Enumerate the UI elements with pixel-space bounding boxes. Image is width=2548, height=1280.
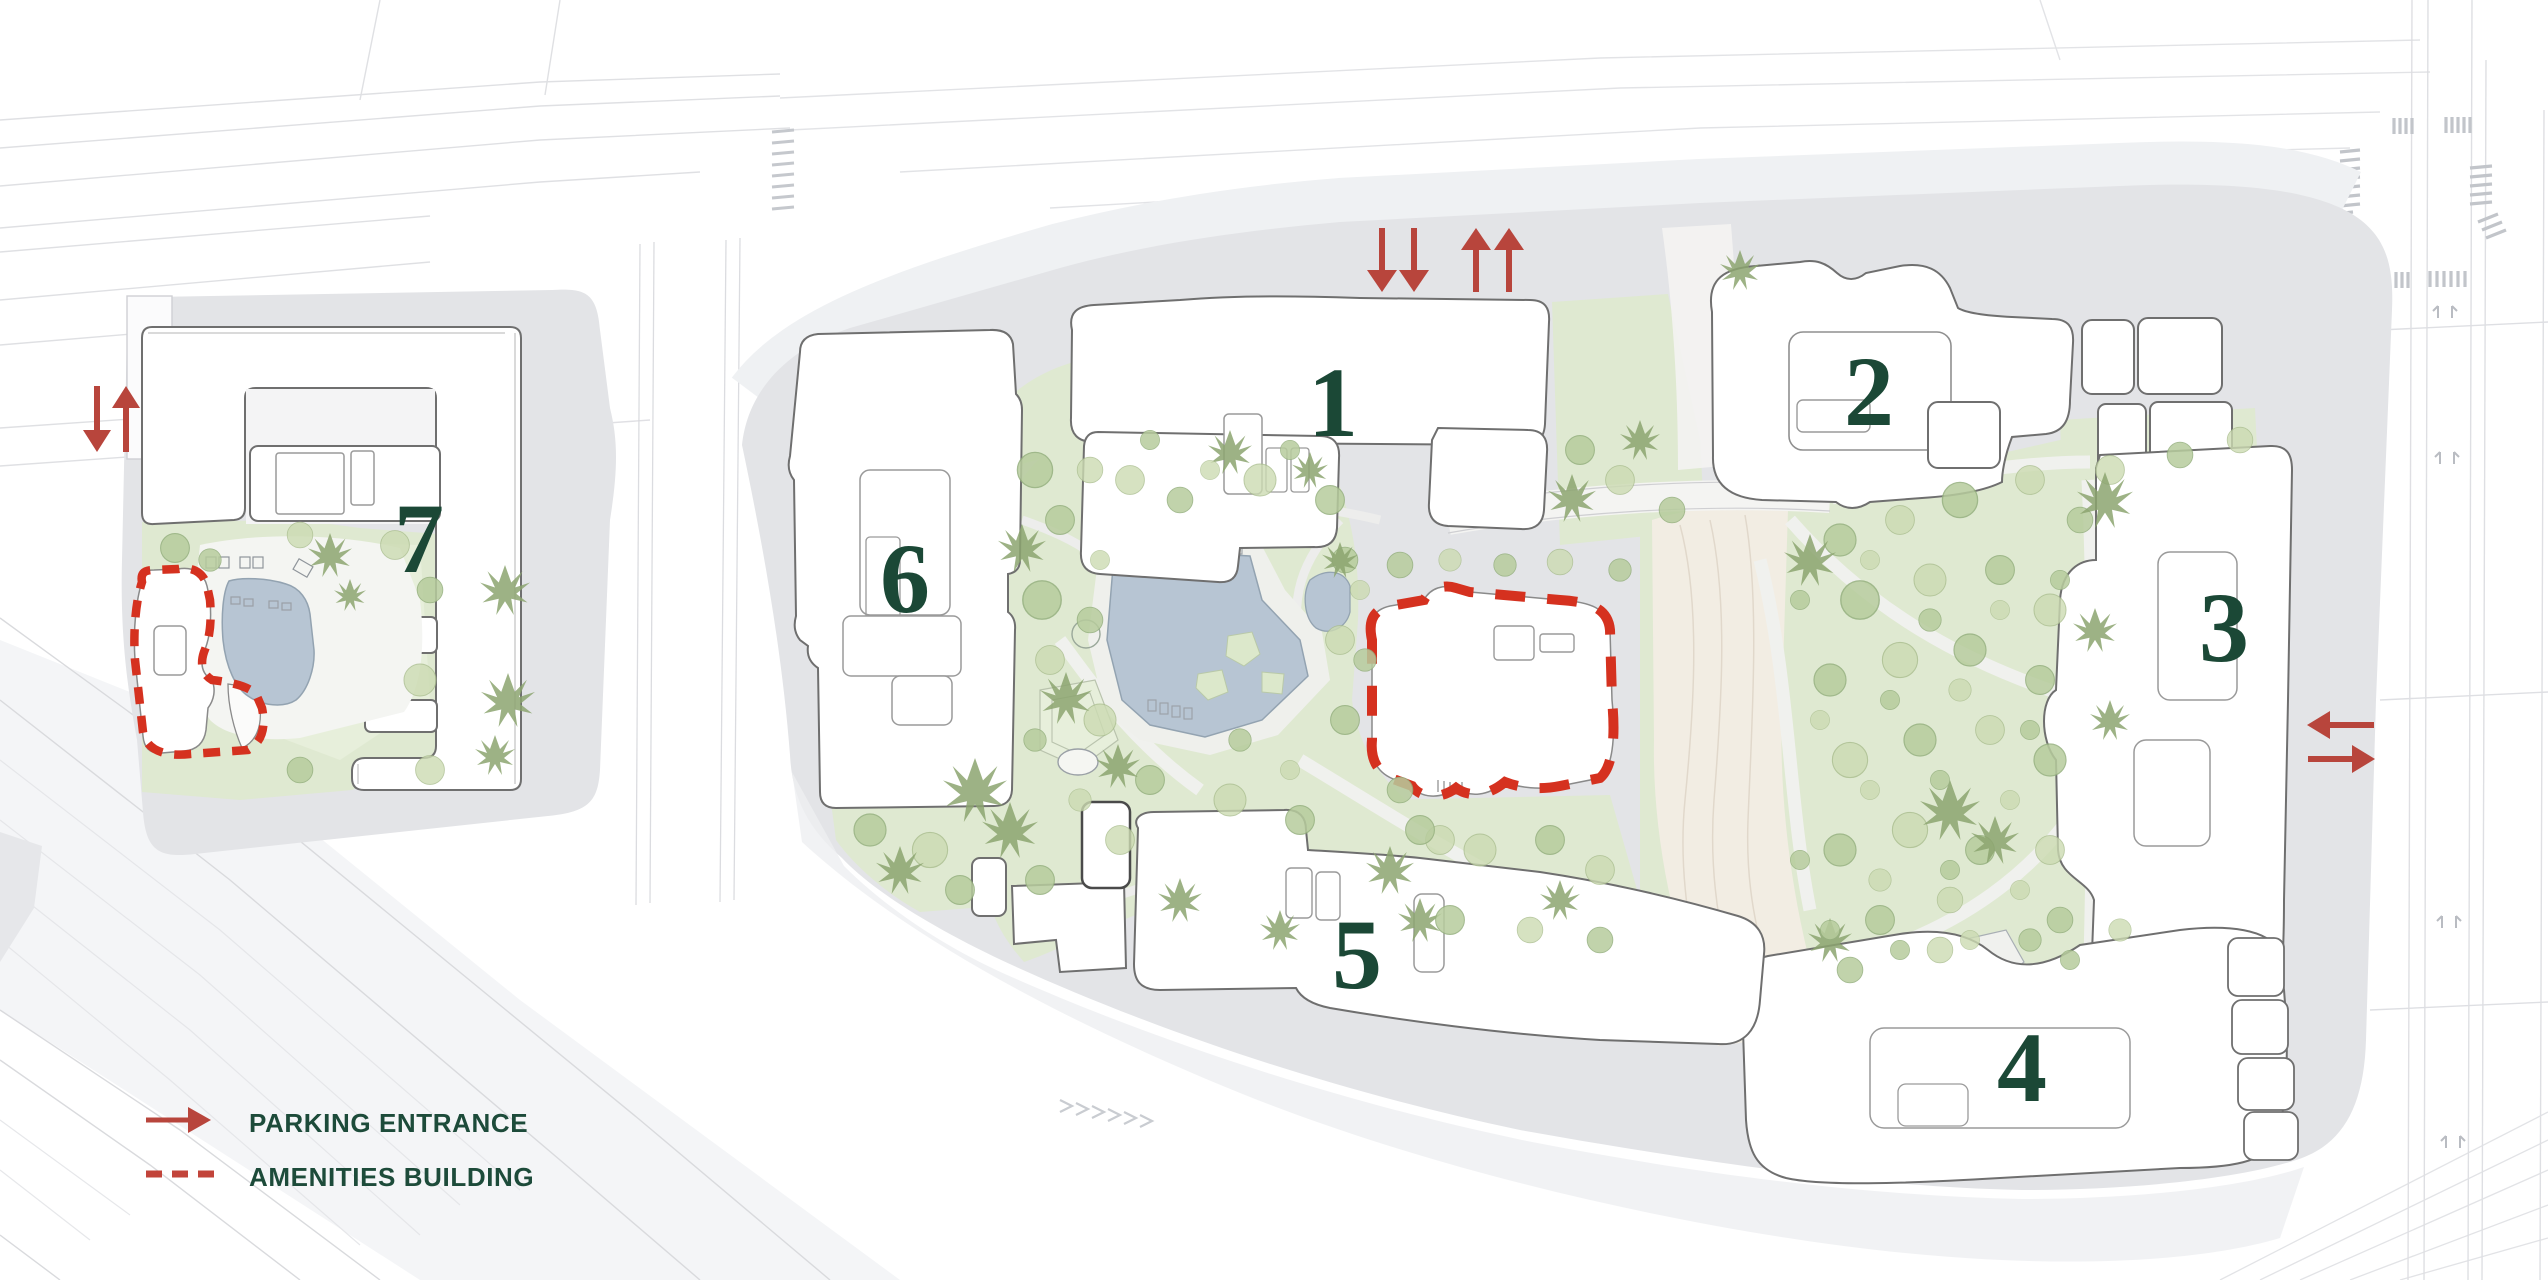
svg-text:3: 3 xyxy=(2199,572,2249,683)
svg-text:4: 4 xyxy=(1997,1012,2047,1123)
svg-text:7: 7 xyxy=(394,483,444,594)
svg-text:PARKING ENTRANCE: PARKING ENTRANCE xyxy=(249,1108,528,1138)
svg-text:6: 6 xyxy=(880,523,930,634)
svg-text:AMENITIES BUILDING: AMENITIES BUILDING xyxy=(249,1162,534,1192)
svg-text:5: 5 xyxy=(1332,899,1382,1010)
svg-text:1: 1 xyxy=(1308,347,1358,458)
svg-text:2: 2 xyxy=(1844,336,1894,447)
